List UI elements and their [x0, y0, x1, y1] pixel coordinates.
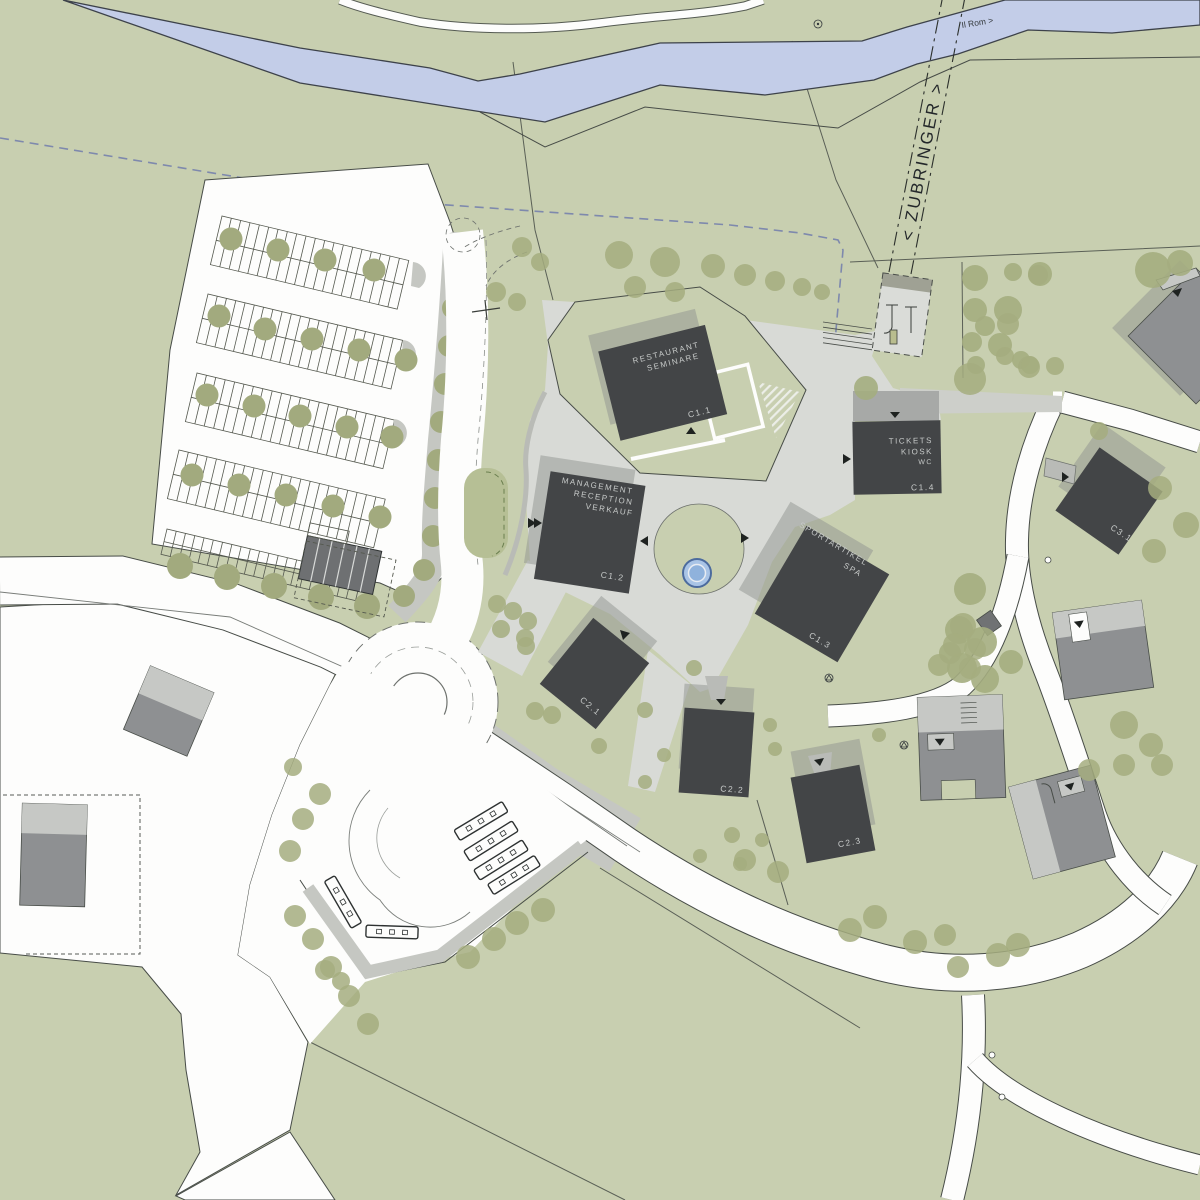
svg-text:KIOSK: KIOSK: [901, 447, 933, 457]
svg-text:TICKETS: TICKETS: [889, 436, 933, 446]
svg-text:C1.4: C1.4: [911, 482, 935, 492]
svg-text:WC: WC: [918, 459, 933, 466]
svg-text:C2.2: C2.2: [720, 783, 745, 795]
